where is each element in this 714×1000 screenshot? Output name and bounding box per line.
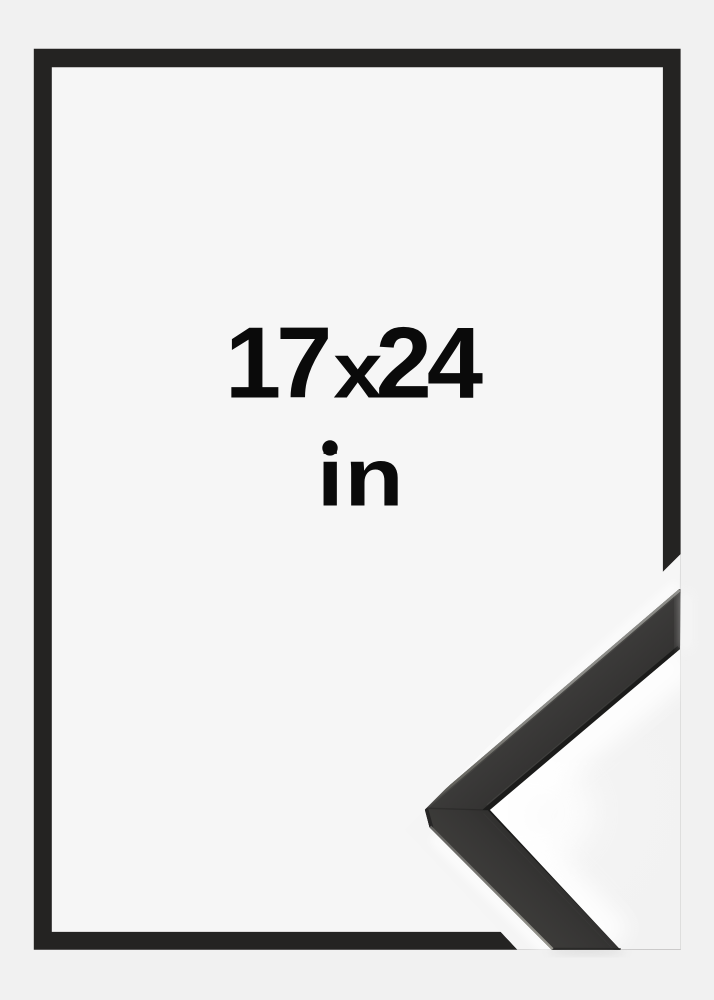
svg-text:24: 24 bbox=[376, 308, 483, 420]
svg-text:17: 17 bbox=[225, 308, 328, 420]
